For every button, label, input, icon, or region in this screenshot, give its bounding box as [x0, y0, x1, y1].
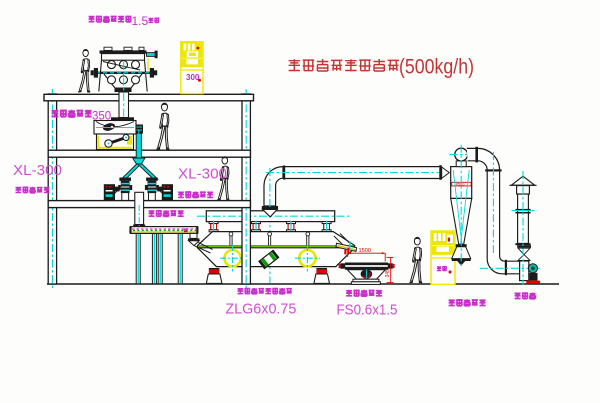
- svg-text:300: 300: [186, 73, 200, 82]
- svg-text:1.5: 1.5: [132, 14, 149, 28]
- svg-text:(500kg/h): (500kg/h): [399, 55, 474, 79]
- svg-text:FS0.6x1.5: FS0.6x1.5: [337, 302, 398, 319]
- svg-text:350: 350: [92, 111, 111, 123]
- svg-text:345: 345: [385, 269, 391, 278]
- svg-text:XL-300: XL-300: [178, 166, 227, 183]
- svg-text:1500: 1500: [359, 248, 371, 254]
- svg-text:ZLG6x0.75: ZLG6x0.75: [225, 301, 296, 318]
- svg-text:XL-300: XL-300: [13, 162, 62, 179]
- svg-text:#500: #500: [456, 182, 466, 187]
